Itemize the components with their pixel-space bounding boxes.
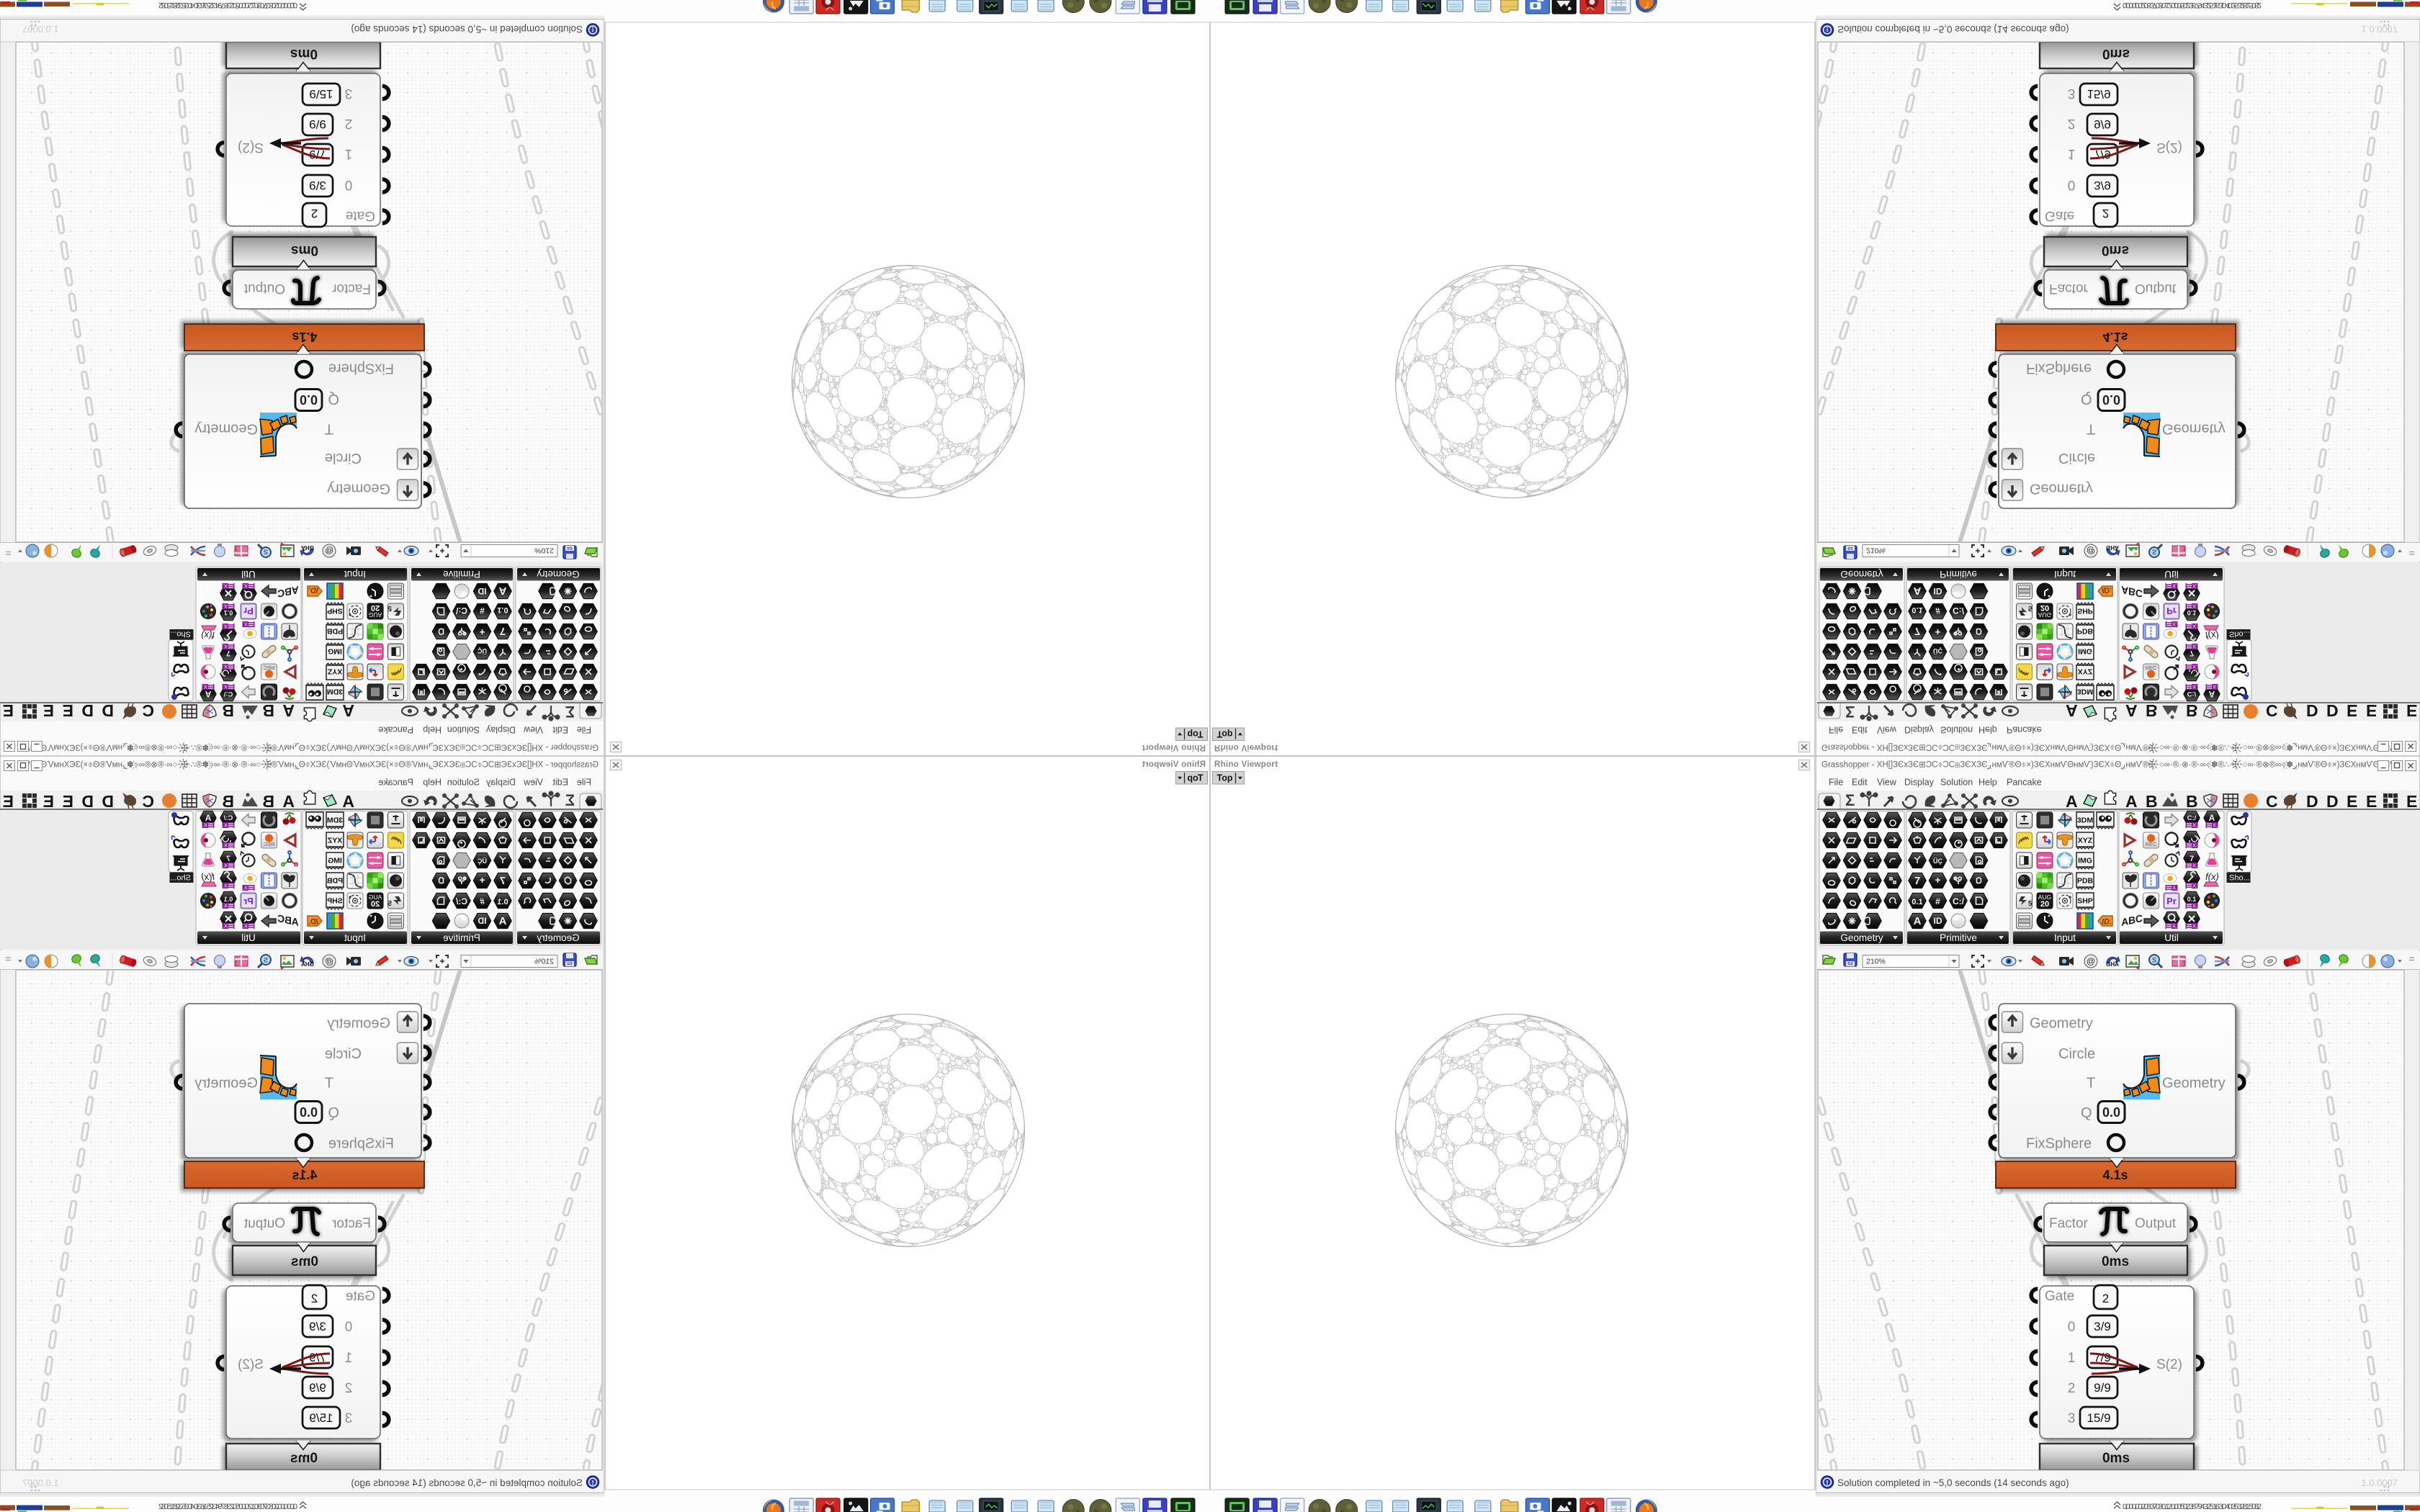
svg-text:210%: 210% xyxy=(1866,958,1886,966)
svg-text:E: E xyxy=(2406,792,2417,811)
svg-text:0.0: 0.0 xyxy=(2102,1105,2120,1120)
svg-text:A: A xyxy=(2066,792,2078,811)
svg-text:A: A xyxy=(1914,915,1922,927)
svg-text:64: 64 xyxy=(1847,962,1853,967)
svg-text:C:/: C:/ xyxy=(2187,814,2197,822)
svg-text:2: 2 xyxy=(2068,1381,2076,1396)
svg-text:T: T xyxy=(2087,1076,2095,1092)
svg-text:X...: X... xyxy=(2172,923,2180,930)
svg-text:ID: ID xyxy=(1934,916,1942,926)
svg-text:5: 5 xyxy=(2028,900,2033,908)
svg-text:E: E xyxy=(2347,792,2357,811)
svg-text:+: + xyxy=(1935,874,1940,886)
svg-text:E: E xyxy=(2366,792,2377,811)
svg-text:C:/: C:/ xyxy=(1953,896,1965,906)
svg-text:View: View xyxy=(1877,778,1897,788)
svg-text:ID.: ID. xyxy=(2102,918,2112,927)
svg-text:C: C xyxy=(2266,792,2278,811)
svg-text:Geometry: Geometry xyxy=(2162,1076,2226,1092)
svg-text:3/9: 3/9 xyxy=(2094,1320,2111,1333)
svg-text:ÜÇ: ÜÇ xyxy=(1933,858,1942,865)
svg-text:f(x): f(x) xyxy=(2205,871,2219,882)
svg-text:Output: Output xyxy=(2135,1216,2177,1231)
svg-text:2: 2 xyxy=(2102,1292,2109,1305)
svg-text:File: File xyxy=(1829,778,1843,788)
svg-text:PDB: PDB xyxy=(2077,877,2094,886)
svg-text:Solution completed in ~5,0 sec: Solution completed in ~5,0 seconds (14 s… xyxy=(1837,1477,2069,1488)
svg-text:X...: X... xyxy=(2172,885,2180,891)
svg-text:Util: Util xyxy=(2164,932,2179,943)
svg-text:0ms: 0ms xyxy=(2102,1451,2130,1466)
svg-text:Rhino Viewport: Rhino Viewport xyxy=(1214,760,1278,769)
svg-text:Pancake: Pancake xyxy=(2007,778,2042,788)
svg-text:Pr: Pr xyxy=(2166,896,2177,906)
svg-text:Factor: Factor xyxy=(2049,1216,2089,1231)
svg-text:0.1: 0.1 xyxy=(2187,896,2197,903)
svg-text:Top: Top xyxy=(1217,773,1233,783)
svg-text:B: B xyxy=(2186,792,2198,811)
svg-text:B: B xyxy=(2146,792,2158,811)
svg-text:1: 1 xyxy=(2068,1351,2076,1366)
svg-text:9/9: 9/9 xyxy=(2094,1381,2111,1395)
svg-text:A: A xyxy=(2125,792,2138,811)
svg-text:4.1s: 4.1s xyxy=(2102,1168,2128,1182)
svg-text:Σ: Σ xyxy=(1845,791,1855,809)
svg-text:1.0.0007: 1.0.0007 xyxy=(2361,1477,2398,1488)
svg-text:GHA: GHA xyxy=(2106,961,2119,968)
svg-text:S(2): S(2) xyxy=(2156,1357,2182,1372)
svg-text:#: # xyxy=(1935,896,1940,906)
svg-text:!: ! xyxy=(1827,1480,1829,1487)
svg-text:0.1: 0.1 xyxy=(1912,898,1922,906)
svg-text:Circle: Circle xyxy=(2058,1046,2095,1062)
svg-text:X...: X... xyxy=(2192,883,2200,889)
svg-text:?: ? xyxy=(2182,960,2186,967)
svg-text:X...: X... xyxy=(2192,903,2200,909)
svg-text:Edit: Edit xyxy=(1852,778,1868,788)
svg-text:0.00 0.00 208 3703 0.12 0.00: 0.00 0.00 208 3703 0.12 0.00 502 38 794 … xyxy=(2123,1503,2262,1511)
svg-text:Sho...: Sho... xyxy=(2229,874,2250,883)
svg-text:X...: X... xyxy=(2192,822,2200,829)
svg-text:REC: REC xyxy=(2146,841,2157,847)
svg-text:Solution: Solution xyxy=(1940,778,1973,788)
svg-text:3: 3 xyxy=(2068,1411,2076,1426)
svg-text:SHP: SHP xyxy=(2077,897,2093,906)
svg-text:15/9: 15/9 xyxy=(2087,1411,2110,1425)
svg-text:D: D xyxy=(2306,792,2318,811)
svg-text:X...: X... xyxy=(2192,923,2200,930)
svg-text:Gate: Gate xyxy=(2045,1289,2074,1304)
svg-text:7: 7 xyxy=(1914,875,1920,887)
svg-text:20: 20 xyxy=(2040,900,2049,909)
svg-text:Geometry: Geometry xyxy=(1840,932,1883,943)
svg-text:Q: Q xyxy=(2081,1105,2092,1121)
svg-text:Input: Input xyxy=(2054,932,2076,943)
svg-text:X...: X... xyxy=(2192,863,2200,869)
svg-text:Display: Display xyxy=(1904,778,1935,788)
svg-text:X...: X... xyxy=(2192,842,2200,849)
svg-text:3DM: 3DM xyxy=(2077,816,2093,825)
svg-text:0ms: 0ms xyxy=(2102,1254,2129,1269)
svg-text:XYZ: XYZ xyxy=(2078,837,2093,845)
svg-text:FixSphere: FixSphere xyxy=(2026,1136,2092,1152)
svg-text:Help: Help xyxy=(1978,778,1997,788)
svg-text:Geometry: Geometry xyxy=(2030,1016,2093,1032)
svg-text:@: @ xyxy=(2087,956,2095,966)
svg-text:IMG: IMG xyxy=(2078,857,2092,865)
svg-text:S: S xyxy=(2152,957,2156,964)
svg-text:D: D xyxy=(2326,792,2339,811)
svg-text:0: 0 xyxy=(2068,1320,2076,1335)
svg-text:X...: X... xyxy=(2213,822,2220,829)
svg-text:Primitive: Primitive xyxy=(1940,932,1977,943)
